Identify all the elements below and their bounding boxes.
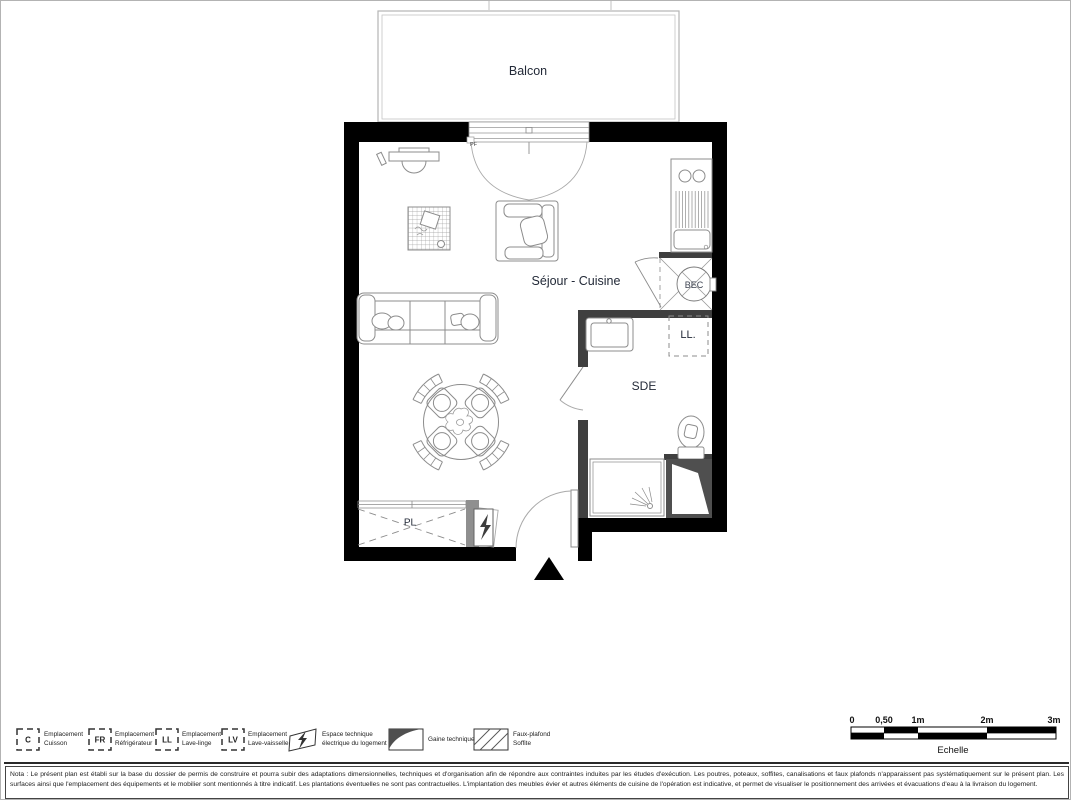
electrical-panel	[474, 508, 498, 547]
legend-code-fridge: FR	[95, 736, 106, 745]
legend-line: Faux-plafond	[513, 730, 550, 739]
floor-plan-page: Balcon PF Séjour - Cuisine BEC LL. SDE P…	[0, 0, 1071, 800]
entrance-arrow-icon	[534, 557, 564, 580]
scale-tick-0: 0	[849, 715, 854, 725]
scale-tick-3m: 3m	[1047, 715, 1060, 725]
toilet	[678, 416, 704, 465]
separator-line	[4, 762, 1069, 764]
legend-label-electrical-space: Espace technique électrique du logement	[322, 730, 387, 748]
scale-bar	[851, 727, 1056, 739]
legend-label-technical-duct: Gaine technique	[428, 735, 475, 744]
desk	[377, 148, 439, 173]
dropped-ceiling-icon	[474, 729, 508, 750]
legend-label-washer: Emplacement Lave-linge	[182, 730, 221, 748]
scale-tick-050: 0,50	[875, 715, 893, 725]
armchair	[496, 201, 558, 261]
legend-line: Emplacement	[115, 730, 154, 739]
legend-line: électrique du logement	[322, 739, 387, 748]
shower-tray	[590, 459, 664, 516]
legend-line: Lave-vaisselle	[248, 739, 289, 748]
washbasin	[586, 318, 633, 351]
water-heater-label: BEC	[685, 280, 704, 290]
legend-line: Lave-linge	[182, 739, 221, 748]
washer-label: LL.	[680, 329, 695, 341]
legend-code-cooking: C	[25, 736, 31, 745]
rug	[408, 207, 450, 250]
legend-label-dropped-ceiling: Faux-plafond Soffite	[513, 730, 550, 748]
legend-line: Emplacement	[248, 730, 289, 739]
crop-mark-lines	[489, 1, 611, 10]
sofa	[357, 293, 498, 344]
floor-plan-drawing	[1, 1, 1071, 800]
shower-room-door	[560, 367, 583, 410]
kitchen-counter	[671, 159, 712, 252]
legend-code-washer: LL	[162, 736, 172, 745]
dining-table	[411, 372, 512, 473]
legend-label-cooking: Emplacement Cuisson	[44, 730, 83, 748]
legend-code-dishwasher: LV	[228, 736, 238, 745]
legend-line: Espace technique	[322, 730, 387, 739]
balcony-label: Balcon	[509, 64, 547, 78]
window-type-label: PF	[470, 142, 477, 148]
nota-disclaimer: Nota : Le présent plan est établi sur la…	[5, 766, 1069, 799]
legend-line: Emplacement	[44, 730, 83, 739]
legend-line: Cuisson	[44, 739, 83, 748]
entrance-door	[516, 490, 578, 548]
legend-line: Réfrigérateur	[115, 739, 154, 748]
scale-tick-2m: 2m	[980, 715, 993, 725]
water-heater-zone	[635, 258, 716, 310]
legend-label-dishwasher: Emplacement Lave-vaisselle	[248, 730, 289, 748]
living-kitchen-label: Séjour - Cuisine	[532, 274, 621, 288]
french-window	[467, 122, 589, 200]
electrical-space-icon	[289, 729, 316, 751]
scale-tick-1m: 1m	[911, 715, 924, 725]
technical-duct	[666, 459, 712, 518]
scale-caption: Echelle	[937, 745, 968, 756]
closet-label: PL	[404, 518, 416, 529]
legend-label-fridge: Emplacement Réfrigérateur	[115, 730, 154, 748]
legend-line: Soffite	[513, 739, 550, 748]
shower-room-label: SDE	[632, 379, 657, 393]
legend-line: Gaine technique	[428, 735, 475, 744]
technical-duct-icon	[389, 729, 423, 750]
legend-line: Emplacement	[182, 730, 221, 739]
